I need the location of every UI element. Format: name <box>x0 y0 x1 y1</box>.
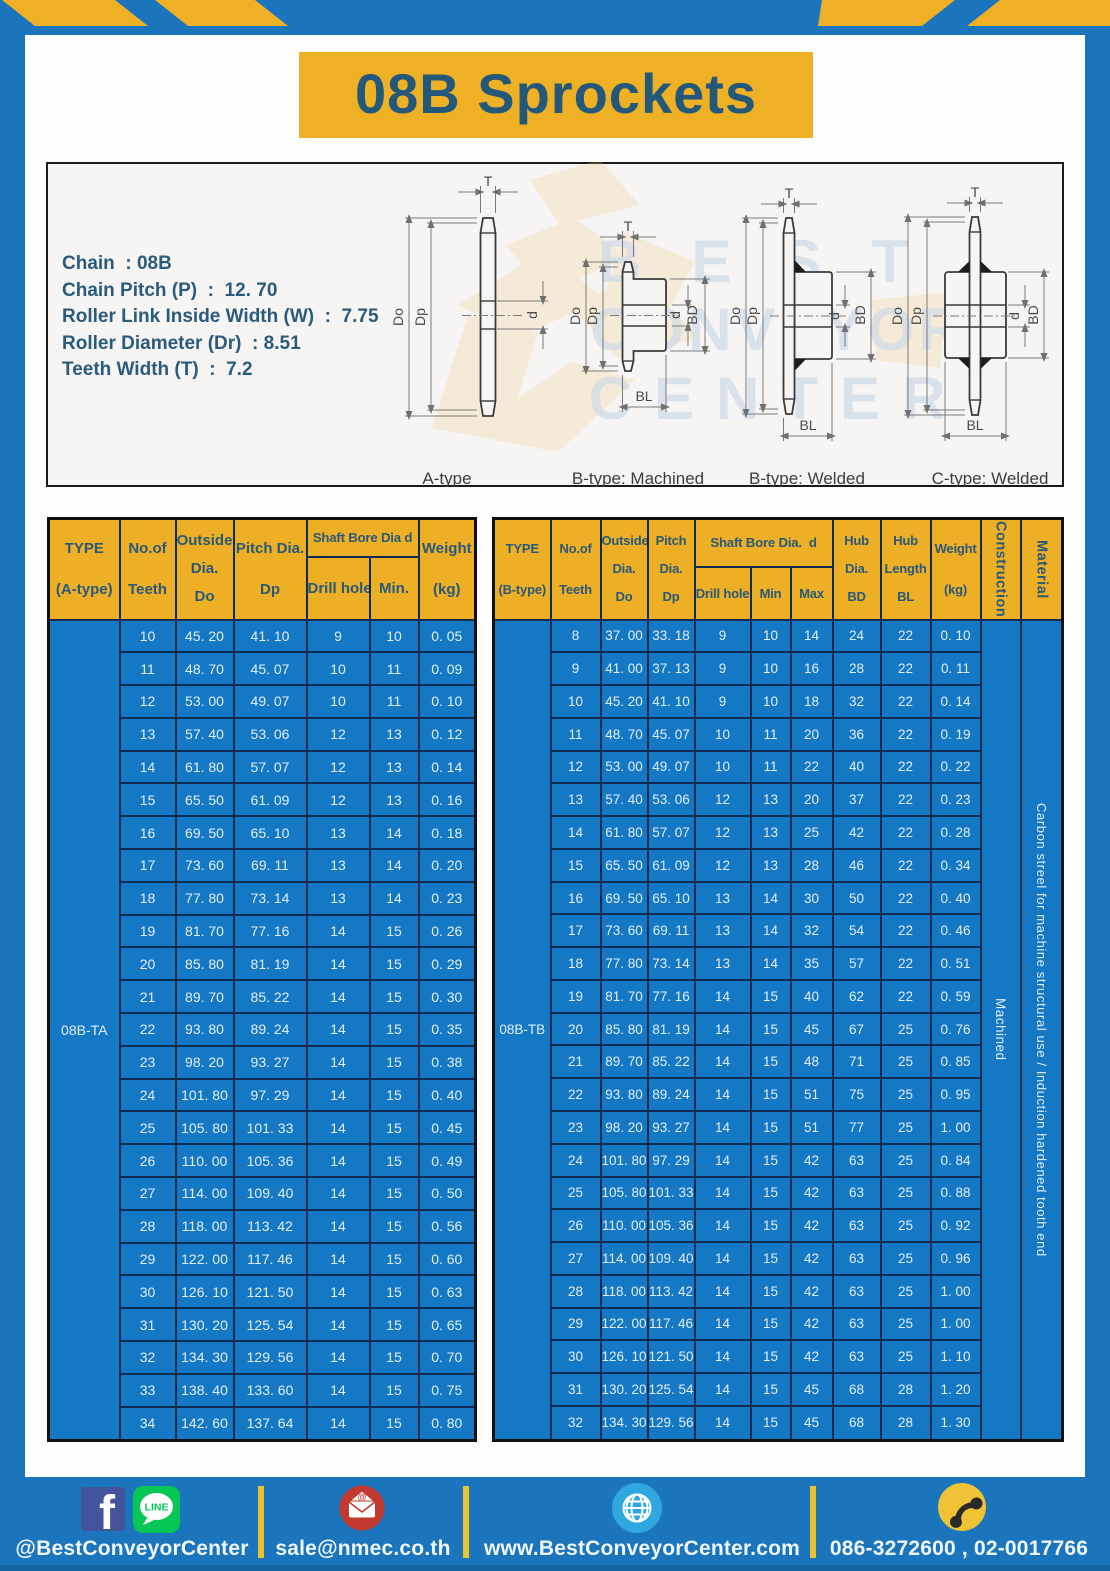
svg-text:T: T <box>624 218 633 234</box>
svg-text:Dp: Dp <box>744 307 760 325</box>
svg-text:B-type: Welded: B-type: Welded <box>749 469 865 487</box>
svg-text:d: d <box>524 311 540 319</box>
svg-text:d: d <box>667 311 683 319</box>
svg-text:B-type: Machined: B-type: Machined <box>572 469 704 487</box>
svg-text:f: f <box>99 1487 116 1540</box>
svg-text:Dp: Dp <box>908 307 924 325</box>
svg-text:Do: Do <box>889 307 905 325</box>
svg-text:BL: BL <box>635 388 652 404</box>
svg-text:BD: BD <box>852 305 868 324</box>
svg-text:d: d <box>826 312 842 320</box>
svg-text:BD: BD <box>1025 305 1041 324</box>
svg-text:BL: BL <box>966 417 983 433</box>
svg-text:A-type: A-type <box>422 469 471 487</box>
svg-text:Do: Do <box>567 307 583 325</box>
svg-text:Dp: Dp <box>412 308 428 326</box>
svg-text:T: T <box>484 173 493 189</box>
svg-text:d: d <box>1006 312 1022 320</box>
svg-text:Dp: Dp <box>584 307 600 325</box>
svg-text:T: T <box>785 185 794 201</box>
svg-text:BD: BD <box>684 305 700 324</box>
svg-text:@: @ <box>358 1492 367 1502</box>
svg-text:LINE: LINE <box>145 1502 169 1514</box>
svg-text:T: T <box>971 184 980 200</box>
svg-text:Do: Do <box>727 307 743 325</box>
svg-text:C-type: Welded: C-type: Welded <box>932 469 1049 487</box>
svg-text:BL: BL <box>799 417 816 433</box>
